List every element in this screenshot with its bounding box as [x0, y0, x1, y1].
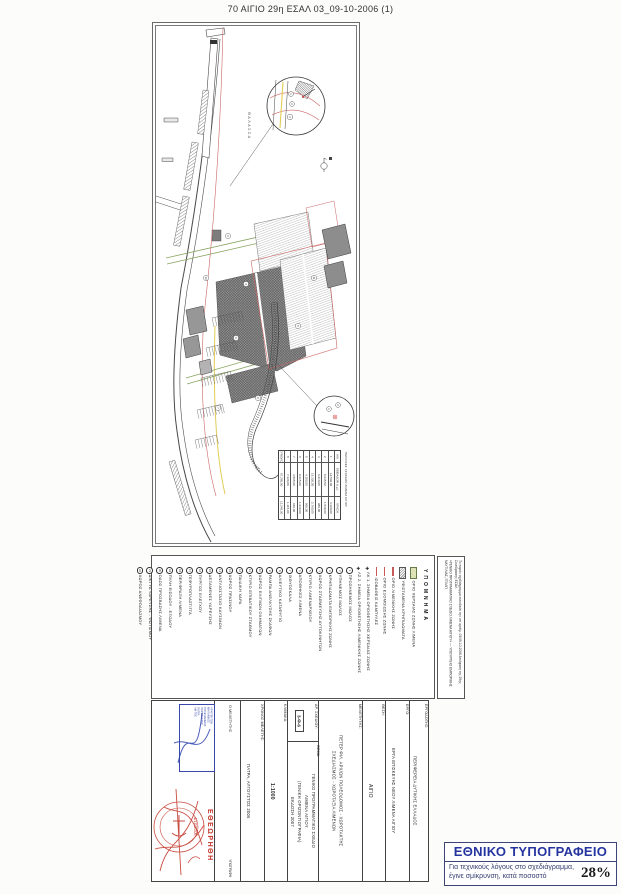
- legend-item-number: 21: [146, 567, 153, 574]
- project-label: ΕΡΓΟ:: [401, 701, 409, 881]
- legend-item-number: 16: [196, 567, 203, 574]
- designer-label: ΜΕΛΕΤΗΤΗΣ:: [354, 701, 362, 881]
- drawing-number-value: 3-Φ-6: [288, 701, 310, 741]
- red-line-swatch: [392, 567, 393, 576]
- legend-item-label: ΚΤΙΡΙΟ ΕΠΙΒΑΤΙΚΟΥ ΣΤΑΘΜΟΥ: [248, 575, 253, 638]
- blue-signature-scrawl: [170, 701, 216, 775]
- printer-title: ΕΘΝΙΚΟ ΤΥΠΟΓΡΑΦΕΙΟ: [444, 842, 617, 862]
- legend-title: ΥΠΟΜΝΗΜΑ: [422, 567, 428, 694]
- legend-item-number: 1: [346, 567, 353, 574]
- legend-item-label: ΡΑΜΠΑ ΑΝΕΛΚΥΣΗΣ ΣΚΑΦΩΝ: [268, 575, 273, 636]
- legend-item-label: ΚΡΗΠΙΔΩΜΑΤΑ ΕΜΠΟΡΙΚΗΣ ΖΩΝΗΣ: [328, 575, 333, 648]
- legend-box: ΥΠΟΜΝΗΜΑ ΟΡΙΟ ΧΕΡΣΑΙΑΣ ΖΩΝΗΣ ΛΙΜΕΝΑ ΥΦΙΣ…: [151, 555, 435, 699]
- area-table: ΠΕΡΙΟΧΕΣ ΧΡΗΣΕΩΝ ΛΙΜΕΝΑ ΑΙΓΙΟΥ Α/Α ΕΜΒΑΔ…: [278, 450, 348, 520]
- note-line: Το παρόν σχεδιάγραμμα συνοδεύει την υπ’ …: [454, 560, 462, 695]
- legend-item-number: 10: [256, 567, 263, 574]
- legend-item: 19ΠΥΛΗ ΕΙΣΟΔΟΥ - ΕΞΟΔΟΥ: [166, 567, 173, 694]
- legend-item-number: 22: [137, 567, 144, 574]
- signer-label: Ο ΜΕΛΕΤΗΤΗΣ: [228, 705, 232, 732]
- legend-item: 21ΔΙΚΤΥΑ ΥΔΡΕΥΣΗΣ - ΦΩΤΙΣΜΟΥ: [146, 567, 153, 694]
- study-date-value: ΠΑΤΡΑ, ΑΥΓΟΥΣΤΟΣ 2006: [241, 701, 256, 881]
- notes-box: Το παρόν σχεδιάγραμμα συνοδεύει την υπ’ …: [437, 556, 465, 699]
- project-value: ΕΡΓΑ ΕΠΙΣΚΕΥΗΣ ΝΕΟΥ ΛΙΜΕΝΑ ΑΙΓΙΟΥ: [386, 701, 401, 881]
- designer-value: ΠΕΤΕΡ ΦΙΛ. ΑΡΧ/ΩΝ ΠΟΛΕΟΔΟΜΟΣ - ΧΩΡΟΤΑΚΤΗ…: [319, 701, 354, 881]
- legend-item-number: 17: [186, 567, 193, 574]
- legend-item-label: ΧΩΡΟΣ ΕΛΙΓΜΩΝ ΟΧΗΜΑΤΩΝ: [258, 575, 263, 636]
- subject-line: (ΓΕΝΙΚΗ ΟΡΙΖΟΝΤΙΟΓΡΑΦΙΑ): [297, 774, 302, 848]
- title-block: ΑΡΧΙΤΕΚΤΩΝΜΗΧΑΝΙΚΟΣΠΟΛΕΟΔΟΜΟΣΧΩΡΟΤΑΚΤΗΣΠ…: [151, 700, 429, 882]
- legend-item: 17ΓΕΦΥΡΟΠΛΑΣΤΙΓΓΑ: [186, 567, 193, 694]
- subject-lines-flow: ΓΕΝΙΚΟ ΠΡΟΓΡΑΜΜΑΤΙΚΟ ΣΧΕΔΙΟΛΙΜΕΝΑ ΑΙΓΙΟΥ…: [288, 774, 316, 848]
- designer-cell: ΠΕΤΕΡ ΦΙΛ. ΑΡΧ/ΩΝ ΠΟΛΕΟΔΟΜΟΣ - ΧΩΡΟΤΑΚΤΗ…: [319, 701, 363, 881]
- legend-item-label: ΑΝΤΛΙΟΣΤΑΣΙΟ ΚΑΥΣΙΜΩΝ: [218, 575, 223, 629]
- legend-item: 7ΙΧΘΥΟΣΚΑΛΑ: [286, 567, 293, 694]
- signature-label: ΥΠΟΓΡΑΦΗ: [228, 859, 232, 877]
- drawing-frame: ΘΑΛΑΣΣΑ 1 2: [152, 22, 360, 547]
- printer-box: ΕΘΝΙΚΟ ΤΥΠΟΓΡΑΦΕΙΟ Για τεχνικούς λόγους …: [444, 842, 617, 888]
- legend-item-label: ΧΩΡΟΣ ΑΝΕΦΟΔΙΑΣΜΟΥ: [138, 575, 143, 626]
- land-zone-swatch: [410, 567, 417, 579]
- legend-item: 16ΠΥΡΓΟΣ ΕΛΕΓΧΟΥ: [196, 567, 203, 694]
- legend-item: 1ΠΡΟΣΗΝΕΜΟΣ ΜΩΛΟΣ: [346, 567, 353, 694]
- subject-line: ΛΙΜΕΝΑ ΑΙΓΙΟΥ: [304, 774, 309, 848]
- legend-item-number: 15: [206, 567, 213, 574]
- legend-item: 18ΠΕΡΙΦΡΑΞΗ ΛΙΜΕΝΑ: [176, 567, 183, 694]
- legend-marker-item: ✚ΛΣ 2. ΣΗΜΕΙΑ ΟΡΙΟΘΕΤΗΣΗΣ ΛΙΜΕΝΙΚΗΣ ΖΩΝΗ…: [356, 567, 362, 694]
- legend-item-label: ΑΛΙΕΥΤΙΚΟ ΚΑΤΑΦΥΓΙΟ: [278, 575, 283, 623]
- legend-item-number: 11: [246, 567, 253, 574]
- project-cell: ΕΡΓΑ ΕΠΙΣΚΕΥΗΣ ΝΕΟΥ ΛΙΜΕΝΑ ΑΙΓΙΟΥ ΕΡΓΟ:: [386, 701, 410, 881]
- legend-item-label: ΚΤΙΡΙΟ ΛΙΜΕΝΑΡΧΕΙΟΥ: [308, 575, 313, 623]
- legend-item: 22ΧΩΡΟΣ ΑΝΕΦΟΔΙΑΣΜΟΥ: [137, 567, 144, 694]
- legend-item-label: ΑΠΟΘΗΚΕΣ ΛΙΜΕΝΑ: [298, 575, 303, 617]
- approval-cell: ΑΡΧΙΤΕΚΤΩΝΜΗΧΑΝΙΚΟΣΠΟΛΕΟΔΟΜΟΣΧΩΡΟΤΑΚΤΗΣΠ…: [152, 701, 215, 881]
- legend-item: 8ΑΛΙΕΥΤΙΚΟ ΚΑΤΑΦΥΓΙΟ: [276, 567, 283, 694]
- legend-item-label: ΥΠΗΝΕΜΟΣ ΜΩΛΟΣ: [338, 575, 343, 616]
- legend-item-label: ΠΑΙΔΙΚΗ ΧΑΡΑ: [238, 575, 243, 605]
- scale-label: ΚΛΙΜΑΚΑ:: [279, 701, 287, 881]
- legend-item: 3ΚΡΗΠΙΔΩΜΑΤΑ ΕΜΠΟΡΙΚΗΣ ΖΩΝΗΣ: [326, 567, 333, 694]
- legend-item-label: ΠΥΛΗ ΕΙΣΟΔΟΥ - ΕΞΟΔΟΥ: [168, 575, 173, 629]
- legend-swatch-item: ΟΡΙΟ ΕΞΟΜΟΙΩΣΗΣ ΖΩΝΗΣ: [383, 567, 388, 694]
- drawing-number-cell: 3-Φ-6 ΑΡ. ΣΧΕΔΙΟΥ:: [288, 701, 318, 742]
- legend-item-label: ΔΙΚΤΥΑ ΥΔΡΕΥΣΗΣ - ΦΩΤΙΣΜΟΥ: [148, 575, 153, 641]
- legend-item-number: 12: [236, 567, 243, 574]
- legend-item-number: 19: [166, 567, 173, 574]
- quay-hatch-swatch: [399, 567, 406, 579]
- legend-item-label: ΠΕΡΙΦΡΑΞΗ ΛΙΜΕΝΑ: [178, 575, 183, 618]
- legend-item: 5ΚΤΙΡΙΟ ΛΙΜΕΝΑΡΧΕΙΟΥ: [306, 567, 313, 694]
- scale-value: 1:1000: [265, 701, 279, 881]
- legend-item-number: 20: [156, 567, 163, 574]
- study-date-label: ΧΡΟΝΟΣ ΜΕΛΕΤΗΣ:: [256, 701, 264, 881]
- red-line-swatch: [376, 567, 377, 576]
- legend-item-number: 4: [316, 567, 323, 574]
- legend-item-number: 5: [306, 567, 313, 574]
- detail-circle-a: 1 2 3: [230, 77, 325, 186]
- designer-line: ΠΕΤΕΡ ΦΙΛ. ΑΡΧ/ΩΝ ΠΟΛΕΟΔΟΜΟΣ - ΧΩΡΟΤΑΚΤΗ…: [339, 735, 344, 846]
- subject-main: ΓΕΝΙΚΟ ΠΡΟΓΡΑΜΜΑΤΙΚΟ ΣΧΕΔΙΟΛΙΜΕΝΑ ΑΙΓΙΟΥ…: [288, 742, 318, 881]
- legend-item-number: 2: [336, 567, 343, 574]
- reduction-percent: 28%: [581, 864, 611, 883]
- legend-item-number: 6: [296, 567, 303, 574]
- area-table-header-strip: Α/Α ΕΜΒΑΔΟΝ (τ.μ.) ΧΡΗΣΗ: [334, 451, 340, 519]
- printer-note: Για τεχνικούς λόγους στο σχεδιάγραμμα, έ…: [444, 862, 617, 886]
- legend-item: 15ΔΕΞΑΜΕΝΕΣ ΥΔΡΕΥΣΗΣ: [206, 567, 213, 694]
- sea-label: ΘΑΛΑΣΣΑ: [247, 112, 251, 140]
- legend-item-number: 7: [286, 567, 293, 574]
- red-line-swatch: [384, 567, 385, 576]
- legend-item-label: ΠΥΡΓΟΣ ΕΛΕΓΧΟΥ: [198, 575, 203, 613]
- subject-lines: ΓΕΝΙΚΟ ΠΡΟΓΡΑΜΜΑΤΙΚΟ ΣΧΕΔΙΟΛΙΜΕΝΑ ΑΙΓΙΟΥ…: [288, 742, 316, 881]
- drawing-number-label: ΑΡ. ΣΧΕΔΙΟΥ:: [310, 701, 318, 741]
- legend-item: 4ΧΩΡΟΣ ΣΤΑΘΜΕΥΣΗΣ ΑΥΤΟΚΙΝΗΤΩΝ: [316, 567, 323, 694]
- legend-item: 6ΑΠΟΘΗΚΕΣ ΛΙΜΕΝΑ: [296, 567, 303, 694]
- north-arrow-icon: [321, 157, 332, 172]
- legend-item: 2ΥΠΗΝΕΜΟΣ ΜΩΛΟΣ: [336, 567, 343, 694]
- signer-cell: Ο ΜΕΛΕΤΗΤΗΣ ΥΠΟΓΡΑΦΗ: [215, 701, 241, 881]
- legend-item-number: 9: [266, 567, 273, 574]
- legend-item: 9ΡΑΜΠΑ ΑΝΕΛΚΥΣΗΣ ΣΚΑΦΩΝ: [266, 567, 273, 694]
- legend-item-number: 18: [176, 567, 183, 574]
- legend-item: 12ΠΑΙΔΙΚΗ ΧΑΡΑ: [236, 567, 243, 694]
- legend-item: 20ΟΔΟΣ ΠΡΟΣΒΑΣΗΣ ΛΙΜΕΝΑ: [156, 567, 163, 694]
- legend-item: 14ΑΝΤΛΙΟΣΤΑΣΙΟ ΚΑΥΣΙΜΩΝ: [216, 567, 223, 694]
- location-label: ΘΕΣΗ:: [377, 701, 385, 881]
- legend-swatch-item: ΙΣΟΒΑΘΕΙΣ ΚΑΜΠΥΛΕΣ: [374, 567, 379, 694]
- note-line: «ΓΕΝΙΚΟ ΠΡΟΓΡΑΜΜΑΤΙΚΟ ΣΧΕΔΙΟ ΛΙΜΕΝΑ ΑΙΓΙ…: [444, 560, 452, 695]
- drawing-frame-inner: ΘΑΛΑΣΣΑ 1 2: [155, 25, 357, 544]
- study-date-cell: ΠΑΤΡΑ, ΑΥΓΟΥΣΤΟΣ 2006 ΧΡΟΝΟΣ ΜΕΛΕΤΗΣ:: [241, 701, 265, 881]
- legend-item-label: ΔΕΞΑΜΕΝΕΣ ΥΔΡΕΥΣΗΣ: [208, 575, 213, 625]
- employer-label: ΕΡΓΟΔΟΤΗΣ:: [420, 701, 428, 881]
- legend-item-label: ΠΡΟΣΗΝΕΜΟΣ ΜΩΛΟΣ: [348, 575, 353, 622]
- scanned-sheet: 70 ΑΙΓΙΟ 29η ΕΣΑΛ 03_09-10-2006 (1): [0, 0, 621, 894]
- legend-item-label: ΓΕΦΥΡΟΠΛΑΣΤΙΓΓΑ: [188, 575, 193, 615]
- legend-item-label: ΟΔΟΣ ΠΡΟΣΒΑΣΗΣ ΛΙΜΕΝΑ: [158, 575, 163, 632]
- page-title: 70 ΑΙΓΙΟ 29η ΕΣΑΛ 03_09-10-2006 (1): [0, 4, 621, 14]
- legend-item-number: 8: [276, 567, 283, 574]
- legend-item: 10ΧΩΡΟΣ ΕΛΙΓΜΩΝ ΟΧΗΜΑΤΩΝ: [256, 567, 263, 694]
- legend-flow: ΥΠΟΜΝΗΜΑ ΟΡΙΟ ΧΕΡΣΑΙΑΣ ΖΩΝΗΣ ΛΙΜΕΝΑ ΥΦΙΣ…: [152, 556, 434, 698]
- notes-flow: Το παρόν σχεδιάγραμμα συνοδεύει την υπ’ …: [438, 557, 464, 698]
- legend-item-label: ΙΧΘΥΟΣΚΑΛΑ: [288, 575, 293, 602]
- legend-item: 13ΧΩΡΟΣ ΠΡΑΣΙΝΟΥ: [226, 567, 233, 694]
- legend-marker-item: ✚ΛΚ 1. ΣΗΜΕΙΑ ΟΡΙΟΘΕΤΗΣΗΣ ΧΕΡΣΑΙΑΣ ΖΩΝΗΣ: [365, 567, 371, 694]
- legend-item: 11ΚΤΙΡΙΟ ΕΠΙΒΑΤΙΚΟΥ ΣΤΑΘΜΟΥ: [246, 567, 253, 694]
- breakwater: [156, 28, 225, 542]
- approval-stamp: [152, 785, 210, 879]
- legend-swatch-item: ΟΡΙΟ ΧΕΡΣΑΙΑΣ ΖΩΝΗΣ ΛΙΜΕΝΑ: [410, 567, 417, 694]
- legend-item-number: 14: [216, 567, 223, 574]
- subject-line: ΕΚΔΟΣΗ 2007: [290, 774, 295, 848]
- legend-items: 1ΠΡΟΣΗΝΕΜΟΣ ΜΩΛΟΣ2ΥΠΗΝΕΜΟΣ ΜΩΛΟΣ3ΚΡΗΠΙΔΩ…: [137, 567, 353, 694]
- area-table-caption: ΠΕΡΙΟΧΕΣ ΧΡΗΣΕΩΝ ΛΙΜΕΝΑ ΑΙΓΙΟΥ: [341, 450, 348, 520]
- legend-item-number: 13: [226, 567, 233, 574]
- designer-lines-flow: ΠΕΤΕΡ ΦΙΛ. ΑΡΧ/ΩΝ ΠΟΛΕΟΔΟΜΟΣ - ΧΩΡΟΤΑΚΤΗ…: [330, 735, 344, 846]
- area-table-grid: Α/Α ΕΜΒΑΔΟΝ (τ.μ.) ΧΡΗΣΗ 112.540,003.120…: [278, 450, 341, 520]
- legend-item-label: ΧΩΡΟΣ ΣΤΑΘΜΕΥΣΗΣ ΑΥΤΟΚΙΝΗΤΩΝ: [318, 575, 323, 652]
- location-cell: ΑΙΓΙΟ ΘΕΣΗ:: [363, 701, 386, 881]
- legend-swatch-item: ΟΡΙΟ ΛΙΜΕΝΙΚΗΣ ΖΩΝΗΣ: [391, 567, 396, 694]
- designer-line: ΣΧΕΔΙΑΣΜΟΣ - ΧΩΡΟΤΑΞΙΑ ΛΙΜΕΝΩΝ: [332, 735, 337, 846]
- legend-swatch-item: ΥΦΙΣΤΑΜΕΝΑ ΚΡΗΠΙΔΩΜΑΤΑ: [399, 567, 406, 694]
- location-value: ΑΙΓΙΟ: [363, 701, 377, 881]
- scale-cell: 1:1000 ΚΛΙΜΑΚΑ:: [265, 701, 288, 881]
- employer-cell: ΠΕΡΙΦΕΡΕΙΑ ΔΥΤΙΚΗΣ ΕΛΛΑΔΟΣ ΕΡΓΟΔΟΤΗΣ:: [410, 701, 428, 881]
- legend-item-number: 3: [326, 567, 333, 574]
- employer-value: ΠΕΡΙΦΕΡΕΙΑ ΔΥΤΙΚΗΣ ΕΛΛΑΔΟΣ: [410, 701, 420, 881]
- subject-cell: 3-Φ-6 ΑΡ. ΣΧΕΔΙΟΥ: ΓΕΝΙΚΟ ΠΡΟΓΡΑΜΜΑΤΙΚΟ …: [288, 701, 319, 881]
- legend-item-label: ΧΩΡΟΣ ΠΡΑΣΙΝΟΥ: [228, 575, 233, 613]
